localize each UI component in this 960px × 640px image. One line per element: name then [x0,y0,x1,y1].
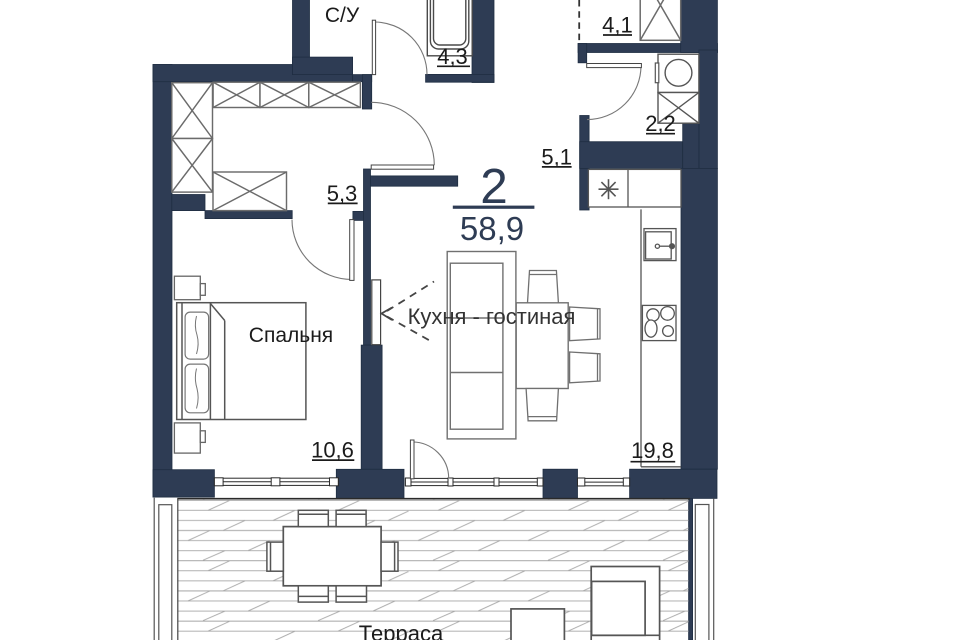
svg-text:С/У: С/У [325,4,360,27]
svg-text:Терраса: Терраса [359,621,444,640]
svg-text:4,3: 4,3 [437,44,468,69]
svg-text:58,9: 58,9 [460,210,524,247]
svg-text:19,8: 19,8 [631,438,674,463]
svg-text:2,2: 2,2 [645,111,676,136]
svg-text:2: 2 [480,159,508,214]
svg-text:Спальня: Спальня [249,324,333,347]
svg-text:Кухня - гостиная: Кухня - гостиная [408,304,576,329]
svg-text:10,6: 10,6 [311,438,354,463]
svg-text:5,3: 5,3 [327,181,358,206]
svg-text:4,1: 4,1 [602,13,633,38]
svg-text:5,1: 5,1 [541,145,572,170]
